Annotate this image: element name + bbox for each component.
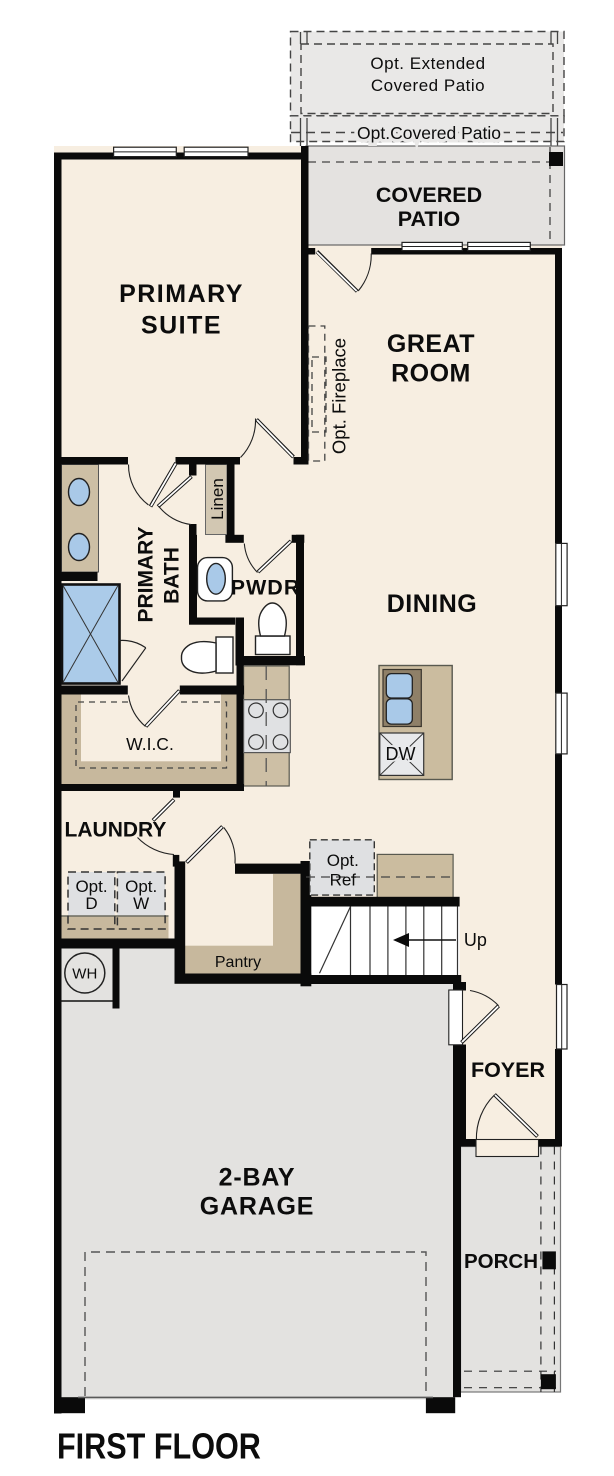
- svg-text:W.I.C.: W.I.C.: [126, 734, 174, 754]
- svg-text:WH: WH: [72, 966, 97, 983]
- svg-text:Covered Patio: Covered Patio: [371, 76, 485, 95]
- svg-text:Opt.Covered Patio: Opt.Covered Patio: [357, 123, 501, 143]
- svg-text:LAUNDRY: LAUNDRY: [65, 819, 167, 842]
- svg-text:Opt.: Opt.: [327, 851, 359, 870]
- svg-text:PRIMARY: PRIMARY: [119, 280, 244, 308]
- svg-text:DW: DW: [386, 744, 416, 764]
- svg-text:SUITE: SUITE: [141, 311, 222, 339]
- svg-text:GREAT: GREAT: [387, 330, 475, 358]
- svg-text:GARAGE: GARAGE: [200, 1193, 315, 1221]
- svg-text:Pantry: Pantry: [215, 954, 261, 971]
- svg-text:Linen: Linen: [208, 478, 227, 520]
- svg-text:BATH: BATH: [161, 547, 184, 604]
- svg-text:Opt. Extended: Opt. Extended: [370, 54, 485, 73]
- svg-text:Up: Up: [464, 930, 487, 950]
- svg-text:PORCH: PORCH: [464, 1250, 538, 1273]
- svg-text:PWDR: PWDR: [231, 576, 301, 600]
- svg-text:PATIO: PATIO: [398, 207, 461, 231]
- svg-text:FIRST FLOOR: FIRST FLOOR: [57, 1427, 261, 1467]
- svg-text:PRIMARY: PRIMARY: [134, 526, 157, 622]
- svg-text:2-BAY: 2-BAY: [219, 1164, 296, 1192]
- svg-text:ROOM: ROOM: [391, 359, 471, 387]
- svg-text:FOYER: FOYER: [471, 1058, 546, 1082]
- svg-text:DINING: DINING: [387, 590, 478, 618]
- svg-text:Ref: Ref: [330, 871, 357, 890]
- svg-text:Opt. Fireplace: Opt. Fireplace: [329, 338, 350, 454]
- svg-text:W: W: [133, 894, 149, 913]
- svg-text:D: D: [85, 894, 97, 913]
- svg-text:COVERED: COVERED: [376, 183, 482, 207]
